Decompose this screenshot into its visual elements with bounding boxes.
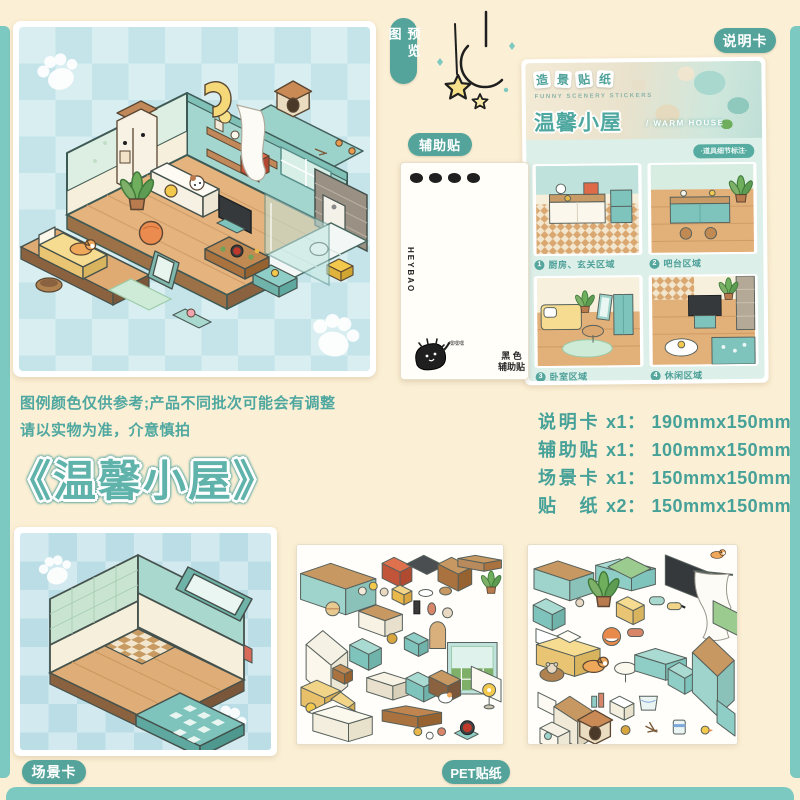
- blob-icon: [467, 173, 480, 183]
- blob-icon: [429, 173, 442, 183]
- spec-row: 辅助贴 x1： 100mmx150mm: [538, 436, 791, 464]
- region-cell-bedroom: 3 卧室区域: [534, 275, 644, 381]
- region-cell-bar: 2 吧台区域: [647, 162, 757, 271]
- product-title: 温馨小屋: [534, 106, 622, 137]
- preview-room-illustration: [19, 27, 370, 371]
- scene-card: [14, 527, 277, 756]
- pet-sticker-badge-label: PET贴纸: [450, 763, 501, 782]
- auxiliary-badge-label: 辅助贴: [419, 135, 461, 154]
- series-char: 造: [533, 70, 552, 89]
- scene-badge-label: 场景卡: [32, 762, 77, 782]
- auxiliary-sticker-card: HEYBAO 黑 色 辅助贴 嘿嘿嘿: [400, 162, 529, 380]
- instruction-badge: 说明卡: [714, 28, 776, 53]
- disclaimer-line2: 请以实物为准，介意慎拍: [20, 417, 336, 444]
- series-title: 造 景 贴 纸: [533, 70, 613, 88]
- disclaimer-text: 图例颜色仅供参考;产品不同批次可能会有调整 请以实物为准，介意慎拍: [20, 390, 336, 444]
- main-product-title: 《温馨小屋》: [8, 447, 278, 509]
- preview-badge-label: 预览图: [385, 27, 423, 75]
- sticker-sheet-2: [527, 544, 738, 745]
- scene-badge: 场景卡: [22, 760, 86, 784]
- preview-card: [13, 21, 376, 377]
- region-grid: 1 厨房、玄关区域: [532, 162, 758, 381]
- region-number: 4: [651, 370, 661, 380]
- region-label: 吧台区域: [663, 256, 701, 269]
- series-char: 纸: [596, 70, 614, 88]
- preview-badge: 预览图: [390, 18, 417, 84]
- spec-qty: x1：: [606, 436, 646, 464]
- spec-name: 说明卡: [538, 408, 598, 436]
- disclaimer-line1: 图例颜色仅供参考;产品不同批次可能会有调整: [20, 390, 336, 417]
- product-title-en: / WARM HOUSE: [646, 118, 725, 128]
- spec-qty: x2：: [606, 492, 646, 520]
- region-label: 卧室区域: [550, 370, 588, 382]
- blob-icon: [410, 173, 423, 183]
- spec-qty: x1：: [606, 408, 646, 436]
- spec-row: 场景卡 x1： 150mmx150mm: [538, 464, 791, 492]
- note-pill: ·道具细节标注·: [694, 144, 755, 159]
- region-cell-kitchen: 1 厨房、玄关区域: [532, 163, 642, 272]
- auxiliary-badge: 辅助贴: [408, 133, 472, 156]
- isometric-room-illustration: [19, 27, 370, 371]
- black-sticker-label: 黑 色 辅助贴: [498, 351, 525, 373]
- region-number: 3: [536, 372, 546, 382]
- spec-size: 150mmx150mm: [652, 464, 792, 492]
- region-cell-leisure: 4 休闲区域: [649, 274, 759, 381]
- blob-icon: [448, 173, 461, 183]
- region-number: 1: [534, 260, 544, 270]
- series-subtitle-en: FUNNY SCENERY STICKERS: [535, 93, 653, 100]
- spec-name: 辅助贴: [538, 436, 598, 464]
- frame-right: [790, 26, 800, 778]
- region-label: 厨房、玄关区域: [548, 257, 615, 271]
- sticker-sheet-1: [296, 544, 504, 745]
- region-number: 2: [649, 258, 659, 268]
- region-label: 休闲区域: [665, 368, 703, 381]
- product-listing-page: 预览图 说明卡 造 景 贴 纸 FUNNY SCEN: [0, 0, 800, 800]
- spec-qty: x1：: [606, 464, 646, 492]
- frame-left: [0, 26, 10, 778]
- spec-row: 贴纸 x2： 150mmx150mm: [538, 492, 791, 520]
- pet-sticker-badge: PET贴纸: [442, 760, 510, 784]
- brand-text: HEYBAO: [406, 247, 415, 293]
- mascot-blob-icon: 嘿嘿嘿: [407, 331, 467, 375]
- spec-size: 150mmx150mm: [652, 492, 792, 520]
- series-char: 景: [554, 70, 572, 88]
- frame-bottom: [6, 787, 794, 800]
- spec-row: 说明卡 x1： 190mmx150mm: [538, 408, 791, 436]
- spec-list: 说明卡 x1： 190mmx150mm 辅助贴 x1： 100mmx150mm …: [538, 408, 791, 520]
- instruction-card-banner: 造 景 贴 纸 FUNNY SCENERY STICKERS 温馨小屋 / WA…: [525, 61, 762, 140]
- instruction-badge-label: 说明卡: [723, 31, 768, 51]
- moon-stars-icon: [428, 10, 520, 122]
- scene-room-illustration: [20, 533, 271, 750]
- spec-size: 100mmx150mm: [652, 436, 792, 464]
- black-blob-stickers: [410, 173, 480, 183]
- series-char: 贴: [575, 70, 594, 89]
- spec-name: 贴纸: [538, 492, 598, 520]
- spec-name: 场景卡: [538, 464, 598, 492]
- instruction-card: 造 景 贴 纸 FUNNY SCENERY STICKERS 温馨小屋 / WA…: [521, 57, 768, 386]
- svg-text:嘿嘿嘿: 嘿嘿嘿: [449, 341, 464, 347]
- spec-size: 190mmx150mm: [652, 408, 792, 436]
